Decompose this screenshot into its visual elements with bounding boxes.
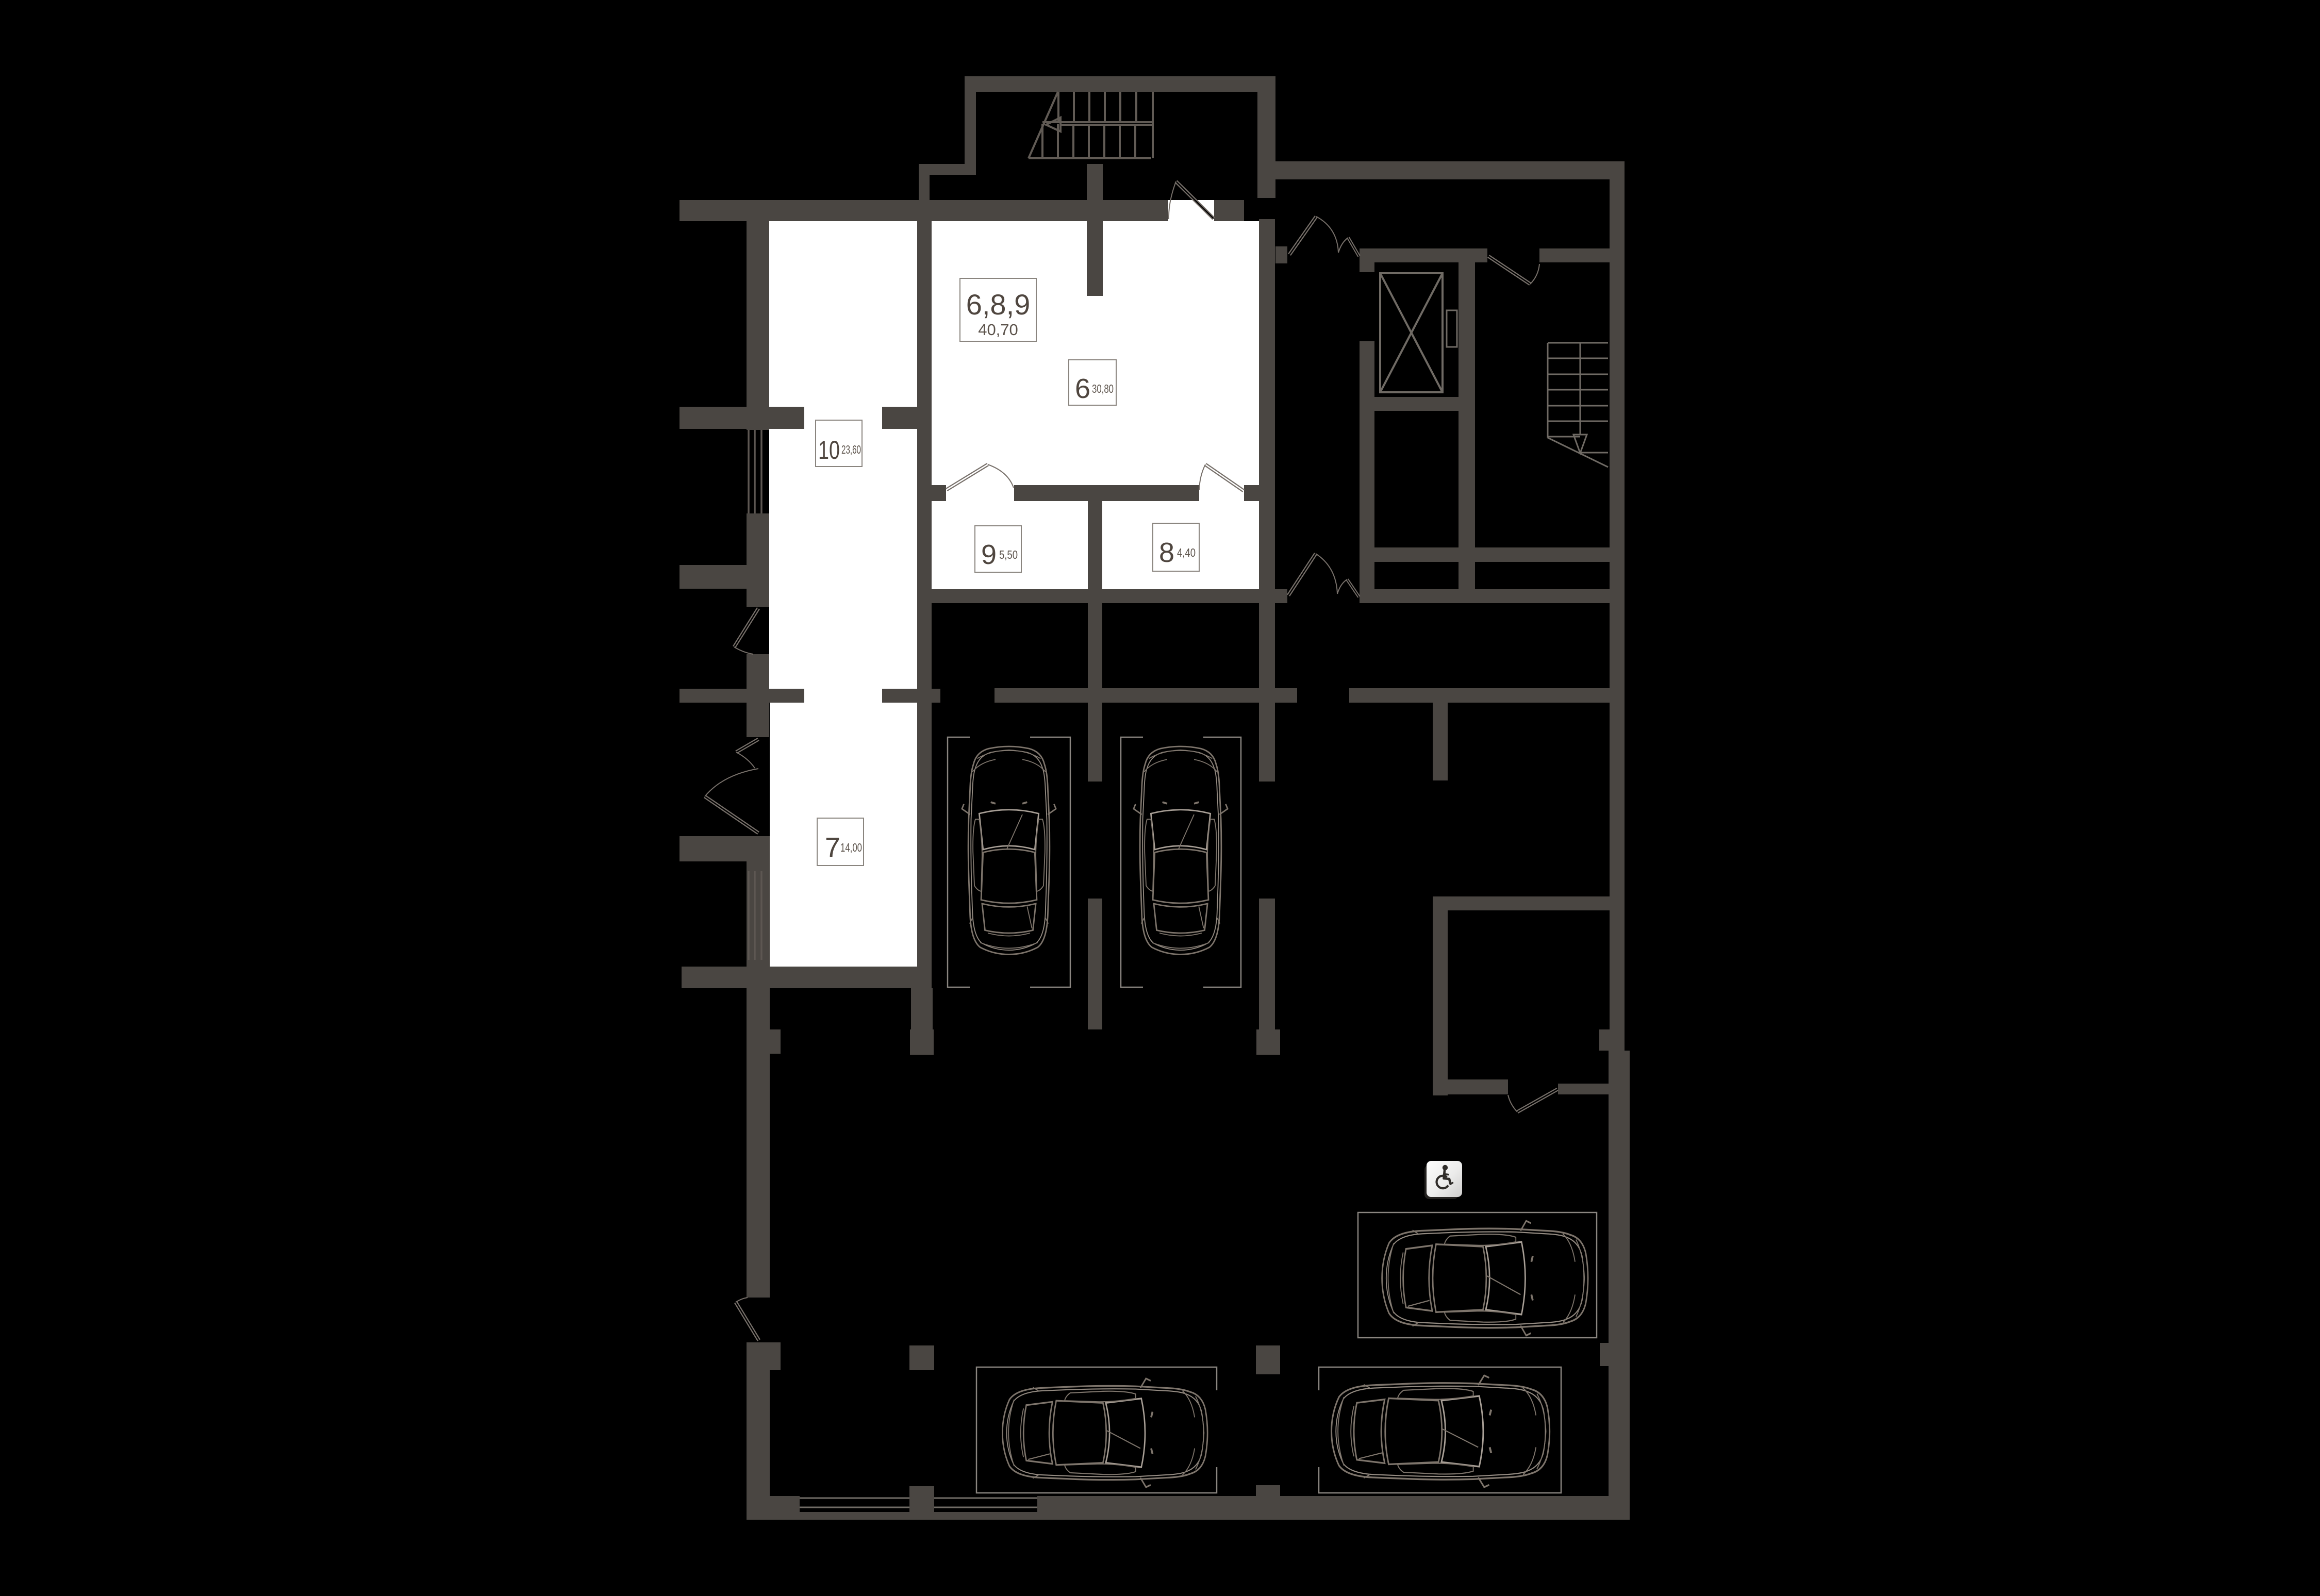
- svg-text:5,50: 5,50: [999, 548, 1018, 561]
- svg-text:6,8,9: 6,8,9: [966, 288, 1031, 321]
- svg-text:10: 10: [818, 436, 840, 464]
- svg-text:9: 9: [981, 539, 997, 570]
- svg-text:6: 6: [1075, 373, 1090, 404]
- svg-text:4,40: 4,40: [1177, 546, 1196, 559]
- svg-text:30,80: 30,80: [1092, 382, 1114, 395]
- svg-text:8: 8: [1159, 537, 1174, 568]
- svg-text:40,70: 40,70: [978, 321, 1018, 339]
- svg-text:14,00: 14,00: [840, 841, 862, 854]
- svg-text:23,60: 23,60: [841, 443, 861, 456]
- svg-text:7: 7: [825, 832, 840, 863]
